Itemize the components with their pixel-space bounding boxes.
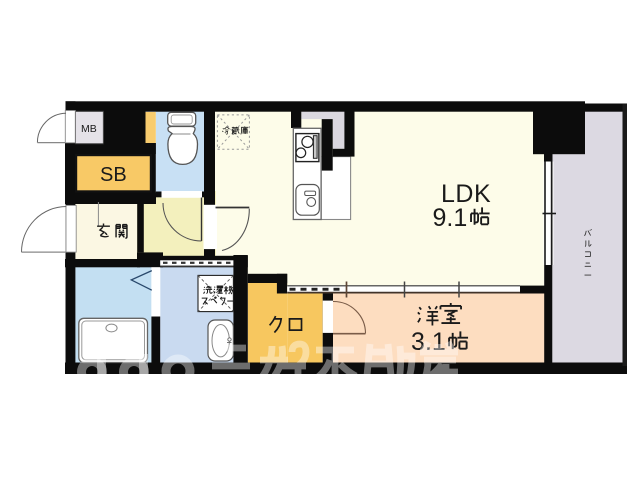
svg-text:9.1: 9.1 — [433, 204, 468, 232]
svg-text:MB: MB — [81, 123, 97, 135]
svg-text:SB: SB — [100, 164, 127, 186]
